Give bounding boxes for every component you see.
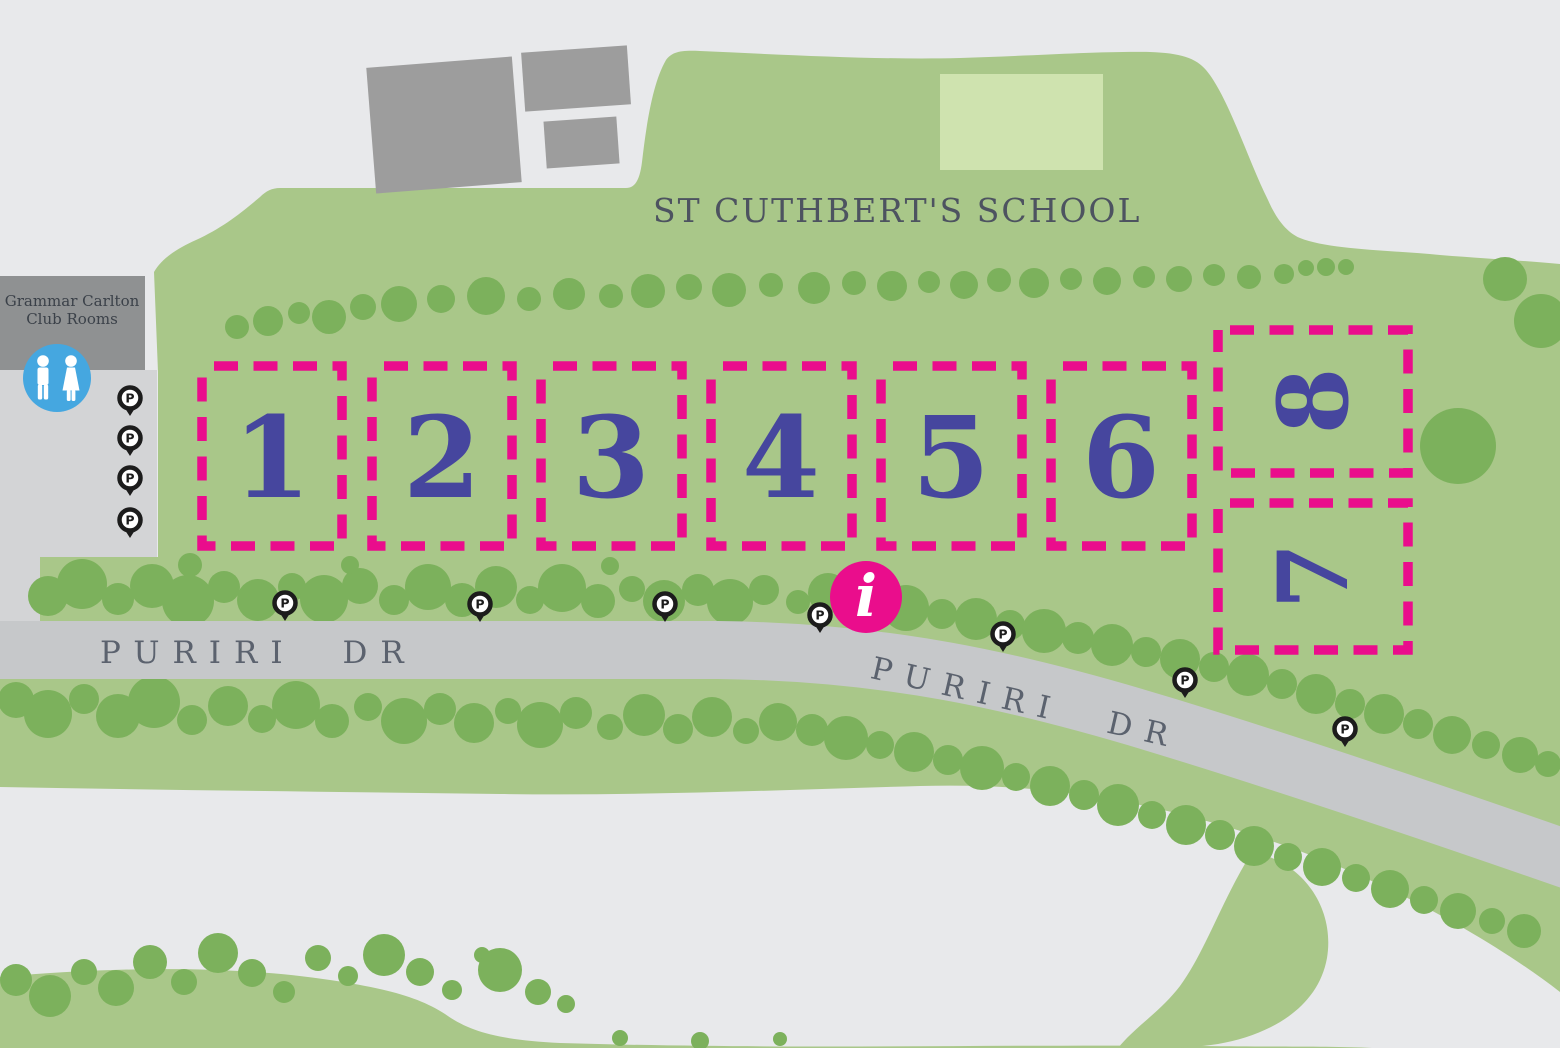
zone-5-number: 5 <box>912 393 990 524</box>
svg-text:P: P <box>815 608 824 623</box>
school-buildings <box>366 45 631 193</box>
school-building-upper <box>521 45 631 111</box>
zone-6-number: 6 <box>1082 393 1160 524</box>
sports-field <box>940 74 1103 170</box>
venue-map: Grammar Carlton Club Rooms <box>0 0 1560 1048</box>
club-rooms-label-line2: Club Rooms <box>26 310 118 328</box>
map-canvas: Grammar Carlton Club Rooms <box>0 0 1560 1048</box>
svg-text:P: P <box>1340 722 1349 737</box>
road-label-left: PURIRI DR <box>100 635 417 671</box>
green-blob <box>1118 852 1328 1048</box>
zone-4-number: 4 <box>742 393 820 524</box>
school-building-large <box>366 56 521 193</box>
svg-text:P: P <box>475 597 484 612</box>
zone-1-number: 1 <box>233 393 311 524</box>
restrooms-circle <box>23 344 91 412</box>
zone-3-number: 3 <box>572 393 650 524</box>
svg-text:P: P <box>125 391 134 406</box>
zone-7-number: 7 <box>1257 543 1370 610</box>
svg-text:P: P <box>660 597 669 612</box>
svg-text:P: P <box>125 513 134 528</box>
svg-text:P: P <box>1180 673 1189 688</box>
svg-text:P: P <box>125 431 134 446</box>
info-marker: i <box>830 561 902 633</box>
school-label: ST CUTHBERT'S SCHOOL <box>653 191 1141 230</box>
svg-text:P: P <box>280 596 289 611</box>
svg-text:P: P <box>125 471 134 486</box>
svg-text:P: P <box>998 627 1007 642</box>
info-icon: i <box>855 562 877 630</box>
zone-2-number: 2 <box>403 393 481 524</box>
zone-8-number: 8 <box>1257 368 1370 435</box>
school-building-small <box>543 116 619 168</box>
club-rooms-label-line1: Grammar Carlton <box>5 292 140 310</box>
restrooms-icon <box>23 344 91 412</box>
